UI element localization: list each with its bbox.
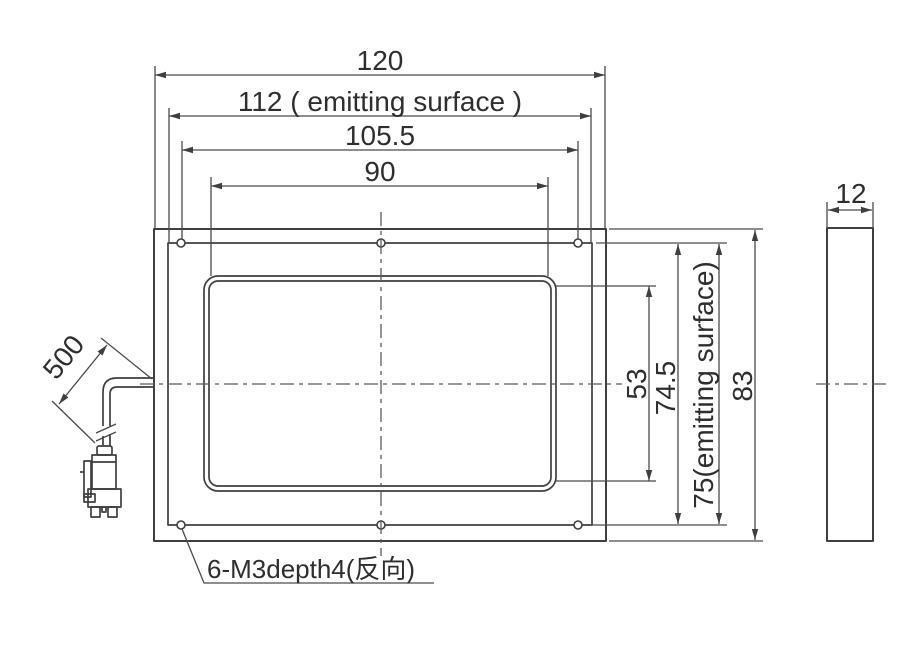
dimension-label-53: 53 [621, 368, 652, 399]
dimension-label-12: 12 [835, 178, 866, 209]
front-view [140, 212, 622, 556]
dimension-label-90: 90 [364, 156, 395, 187]
cable-break-mark [96, 424, 116, 441]
connector-base [88, 489, 121, 507]
dimension-label-83: 83 [727, 370, 758, 401]
connector [80, 446, 121, 517]
mounting-hole [574, 521, 582, 529]
dimension-label-120: 120 [357, 45, 404, 76]
dimension-width-window: 90 [211, 156, 548, 276]
side-view: 12 [816, 178, 886, 541]
mounting-note-label: 6-M3depth4(反向) [207, 554, 415, 584]
connector-center-tab [102, 507, 106, 512]
connector-boot [97, 446, 112, 455]
dimension-label-105-5: 105.5 [345, 120, 415, 151]
extension-line [211, 177, 548, 276]
mounting-hole [574, 239, 582, 247]
mounting-hole [177, 521, 185, 529]
mounting-hole [177, 239, 185, 247]
connector-leg-left [91, 507, 100, 517]
technical-drawing: 120 112 ( emitting surface ) 105.5 90 53… [0, 0, 921, 645]
dimension-label-112: 112 ( emitting surface ) [238, 86, 522, 117]
dimension-label-74-5: 74.5 [650, 361, 681, 416]
dimension-label-500: 500 [37, 329, 90, 385]
connector-leg-right [108, 507, 117, 517]
mounting-note: 6-M3depth4(反向) [182, 529, 434, 584]
connector-latch-foot [84, 494, 95, 502]
dimension-label-75-emitting: 75(emitting surface) [688, 261, 719, 508]
cable-assembly [80, 378, 154, 517]
dimension-thickness: 12 [827, 178, 873, 228]
dimension-height-emitting: 75(emitting surface) [688, 244, 719, 524]
dimension-cable-length: 500 [37, 329, 152, 443]
connector-body [92, 455, 116, 489]
cable-wire-inner [110, 387, 154, 426]
